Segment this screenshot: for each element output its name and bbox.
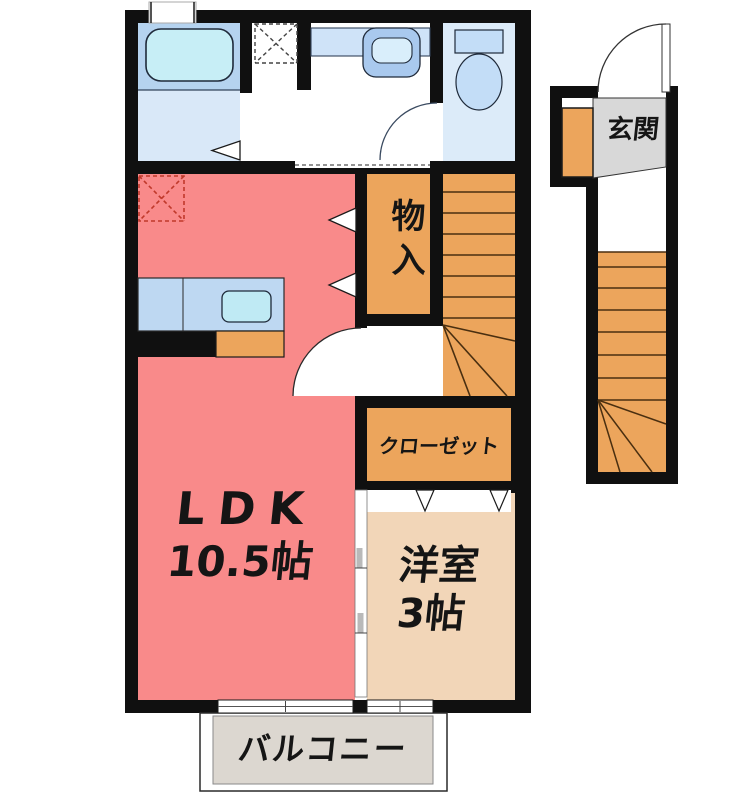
western-room-label: 洋室 [378, 546, 500, 586]
closet-label: クローゼット [365, 436, 513, 456]
balcony-label: バルコニー [220, 733, 425, 765]
kitchen-partition-wall [138, 331, 216, 357]
bathroom-window [149, 2, 196, 23]
interior-stairs-floor [443, 173, 515, 396]
toilet-tank [455, 30, 503, 53]
washing-machine-space [255, 24, 297, 63]
shoe-cabinet [562, 108, 593, 177]
wall [550, 86, 562, 187]
toilet-door-opening [430, 103, 443, 160]
wall [430, 173, 443, 325]
kitchen-sink [222, 291, 271, 322]
toilet-bowl [456, 54, 502, 110]
wall [125, 10, 138, 713]
ldk-floor [138, 173, 355, 700]
ldk-label: LDK [148, 486, 333, 531]
sliding-door-track [355, 490, 367, 697]
sliding-door-panel [358, 613, 364, 633]
exterior-stairs-floor [598, 252, 666, 472]
western-room-size-label: 3帖 [370, 594, 492, 634]
entrance-door-leaf [662, 24, 670, 92]
wall [355, 173, 367, 334]
closet-door-band [367, 490, 511, 512]
wall [240, 23, 252, 93]
entrance-label: 玄関 [596, 117, 671, 143]
kitchen-stove-base [216, 331, 284, 357]
hall-floor [367, 325, 443, 396]
ldk-size-label: 10.5帖 [136, 541, 344, 583]
storage-label: 物入 [374, 198, 422, 310]
vanity-sink-basin [372, 38, 412, 63]
wall [586, 175, 598, 484]
wall [586, 472, 678, 484]
floorplan: LDK 10.5帖 洋室 3帖 物入 クローゼット 玄関 バルコニー [0, 0, 745, 800]
bathtub [146, 29, 233, 81]
entrance-door-arc [598, 24, 666, 92]
bathroom-door-opening [240, 93, 252, 161]
wall [515, 10, 531, 713]
wall [297, 23, 311, 90]
wall [430, 23, 443, 103]
sliding-door-panel [357, 548, 363, 568]
wall [355, 314, 443, 326]
wall [666, 86, 678, 484]
